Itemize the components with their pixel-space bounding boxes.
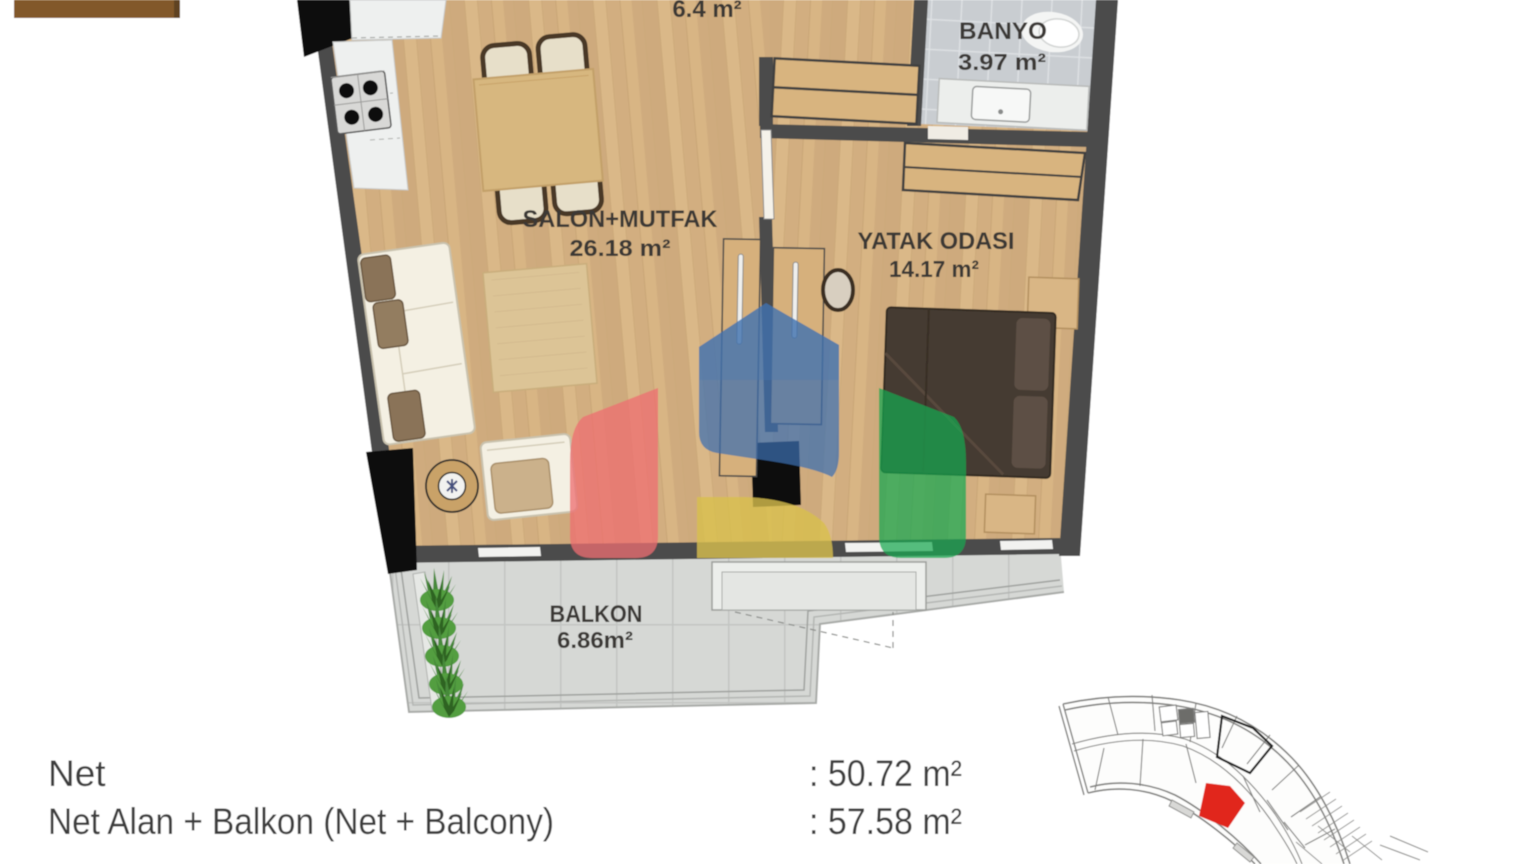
svg-text:BANYO: BANYO <box>959 18 1047 45</box>
svg-text:YATAK ODASI: YATAK ODASI <box>858 228 1015 255</box>
svg-text:3.97 m²: 3.97 m² <box>958 49 1046 75</box>
svg-text:26.18 m²: 26.18 m² <box>570 235 671 261</box>
svg-text:Net: Net <box>48 753 106 794</box>
svg-text:6.86m²: 6.86m² <box>557 627 633 653</box>
svg-text:: 57.58 m²: : 57.58 m² <box>809 801 962 842</box>
svg-text:14.17 m²: 14.17 m² <box>889 256 979 282</box>
svg-text:: 50.72 m²: : 50.72 m² <box>809 753 962 794</box>
svg-text:BALKON: BALKON <box>550 601 643 628</box>
svg-text:SALON+MUTFAK: SALON+MUTFAK <box>523 206 719 233</box>
svg-text:6.4 m²: 6.4 m² <box>672 0 741 23</box>
svg-text:Net Alan + Balkon (Net + Balco: Net Alan + Balkon (Net + Balcony) <box>48 801 554 842</box>
